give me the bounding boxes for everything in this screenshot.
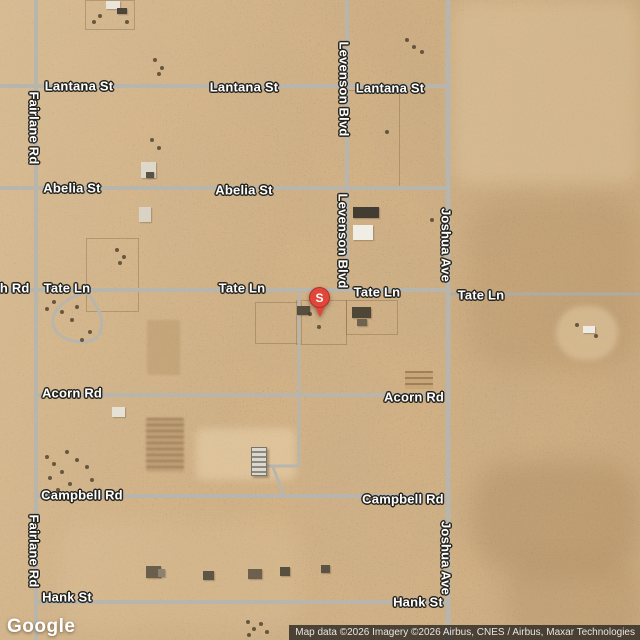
google-logo[interactable]: Google (7, 616, 75, 638)
attribution-bar: Map data ©2026 Imagery ©2026 Airbus, CNE… (289, 625, 640, 640)
map-canvas[interactable]: Lantana StLantana StLantana StAbelia StA… (0, 0, 640, 640)
map-marker-s[interactable]: S (309, 287, 331, 319)
marker-circle: S (309, 287, 330, 308)
roads-layer (0, 0, 640, 640)
marker-label: S (315, 291, 323, 305)
road-segment (273, 467, 284, 496)
road-path (53, 292, 102, 342)
